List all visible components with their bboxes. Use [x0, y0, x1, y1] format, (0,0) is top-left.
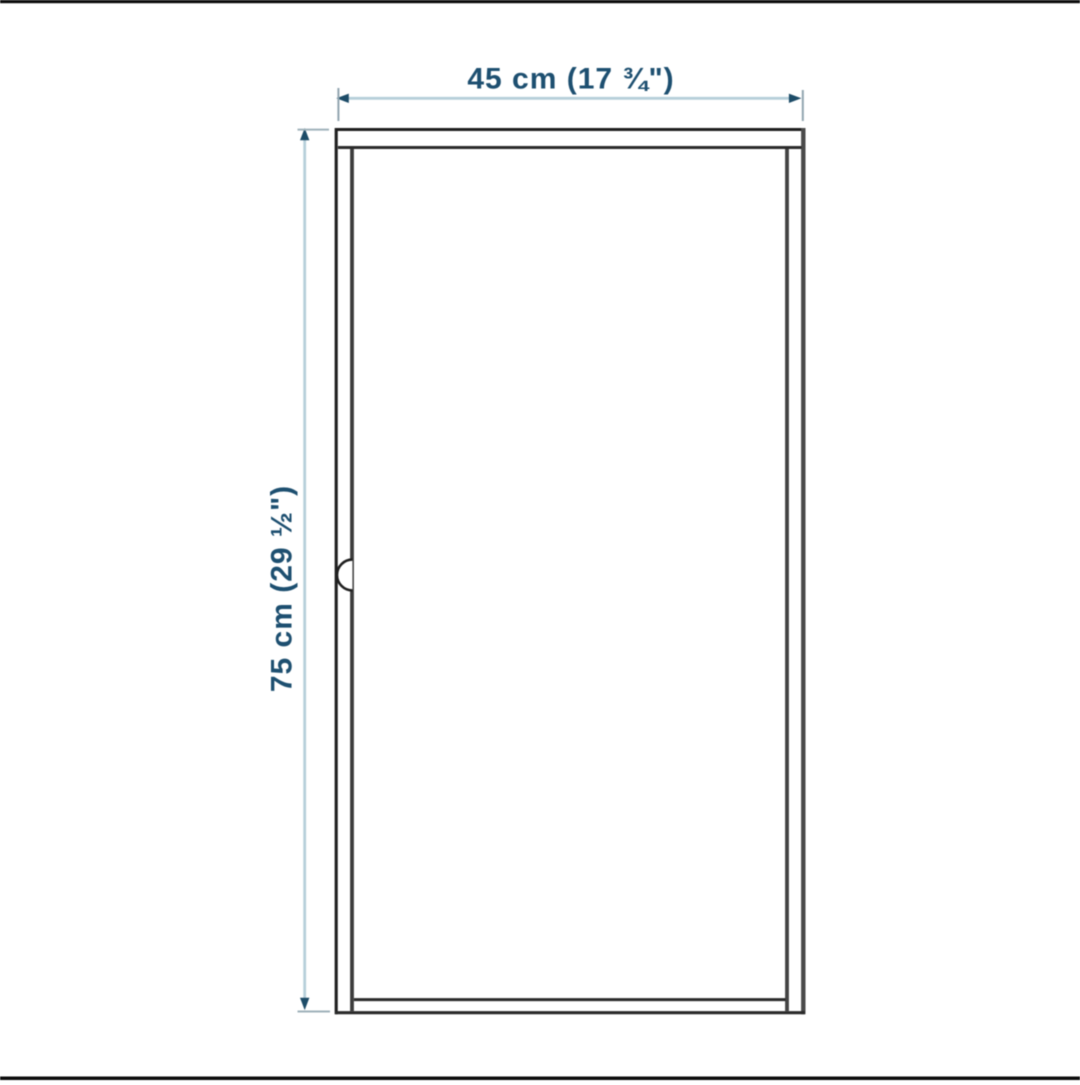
svg-text:45 cm (17 ¾"): 45 cm (17 ¾"): [467, 63, 674, 96]
svg-text:75 cm (29 ½"): 75 cm (29 ½"): [266, 485, 299, 692]
